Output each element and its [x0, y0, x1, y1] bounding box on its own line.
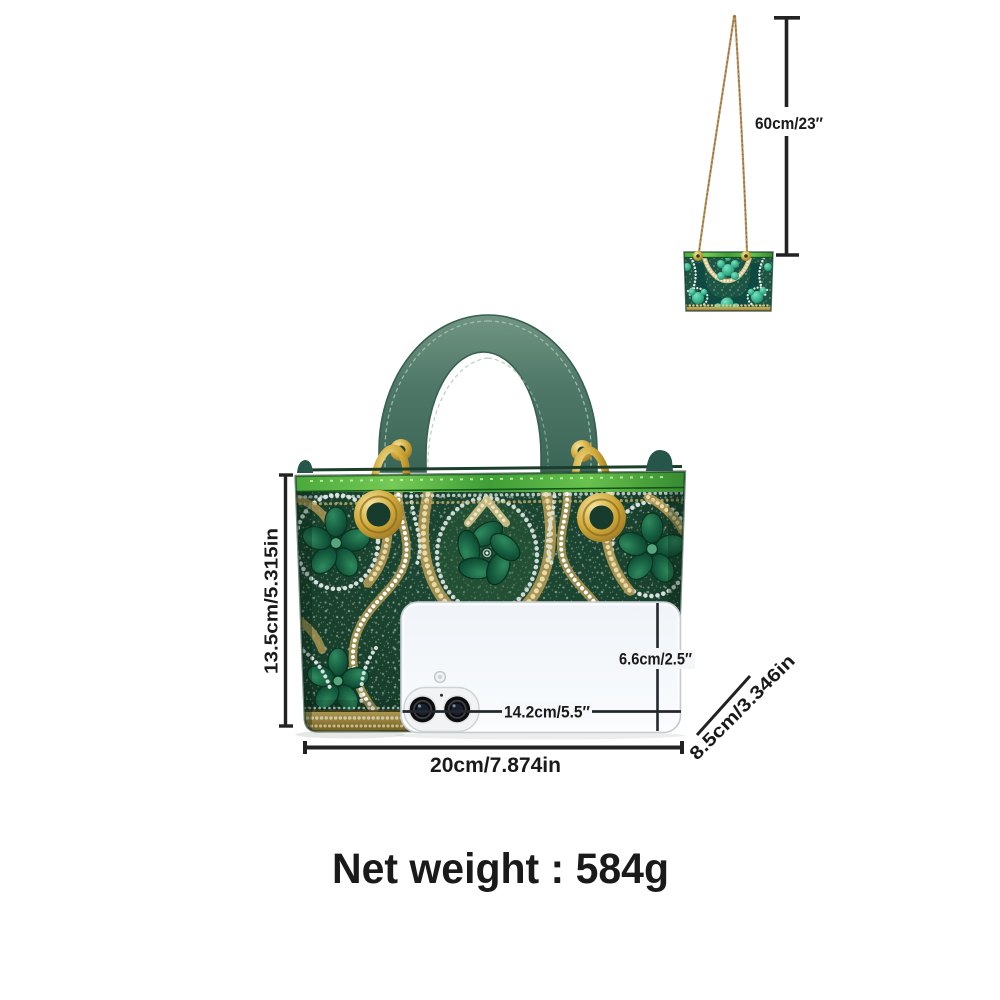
svg-text:14.2cm/5.5″: 14.2cm/5.5″ — [504, 703, 590, 722]
svg-text:13.5cm/5.315in: 13.5cm/5.315in — [261, 528, 282, 674]
svg-text:8.5cm/3.346in: 8.5cm/3.346in — [685, 650, 799, 764]
svg-text:20cm/7.874in: 20cm/7.874in — [430, 754, 561, 777]
svg-text:60cm/23″: 60cm/23″ — [755, 115, 823, 133]
svg-text:6.6cm/2.5″: 6.6cm/2.5″ — [619, 650, 692, 669]
svg-text:Net weight : 584g: Net weight : 584g — [332, 846, 669, 893]
